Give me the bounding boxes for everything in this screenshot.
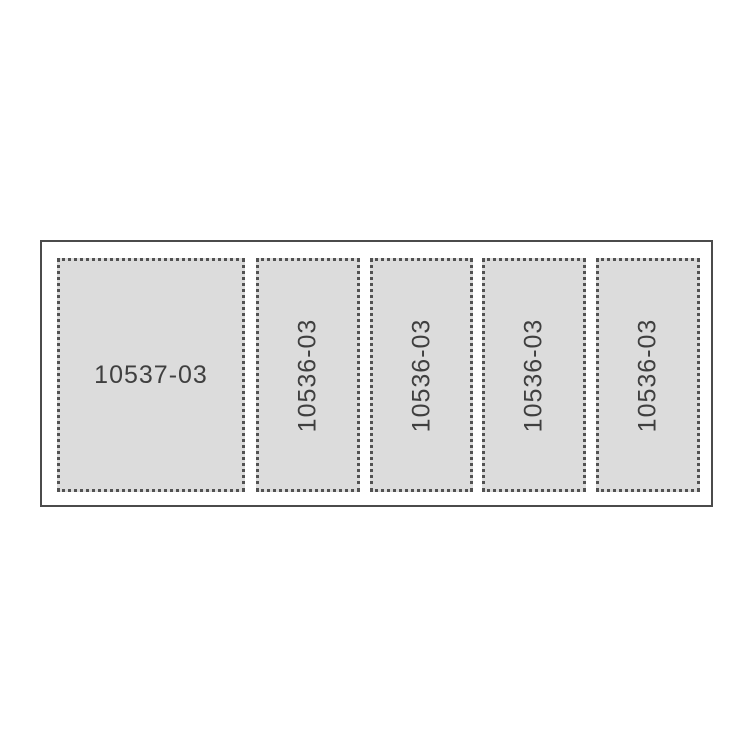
diagram-canvas: 10537-03 10536-03 10536-03 10536-03 1053… xyxy=(0,0,752,750)
sheet-outline: 10537-03 10536-03 10536-03 10536-03 1053… xyxy=(40,240,713,507)
panel-label-4: 10536-03 xyxy=(522,318,547,432)
panel-label-2: 10536-03 xyxy=(296,318,321,432)
panel-label-3: 10536-03 xyxy=(409,318,434,432)
panel-label-5: 10536-03 xyxy=(636,318,661,432)
sheet-panel-2: 10536-03 xyxy=(256,258,360,492)
sheet-panel-1: 10537-03 xyxy=(57,258,245,492)
sheet-panel-4: 10536-03 xyxy=(482,258,586,492)
panel-label-1: 10537-03 xyxy=(94,363,208,388)
sheet-panel-3: 10536-03 xyxy=(370,258,473,492)
sheet-panel-5: 10536-03 xyxy=(596,258,700,492)
